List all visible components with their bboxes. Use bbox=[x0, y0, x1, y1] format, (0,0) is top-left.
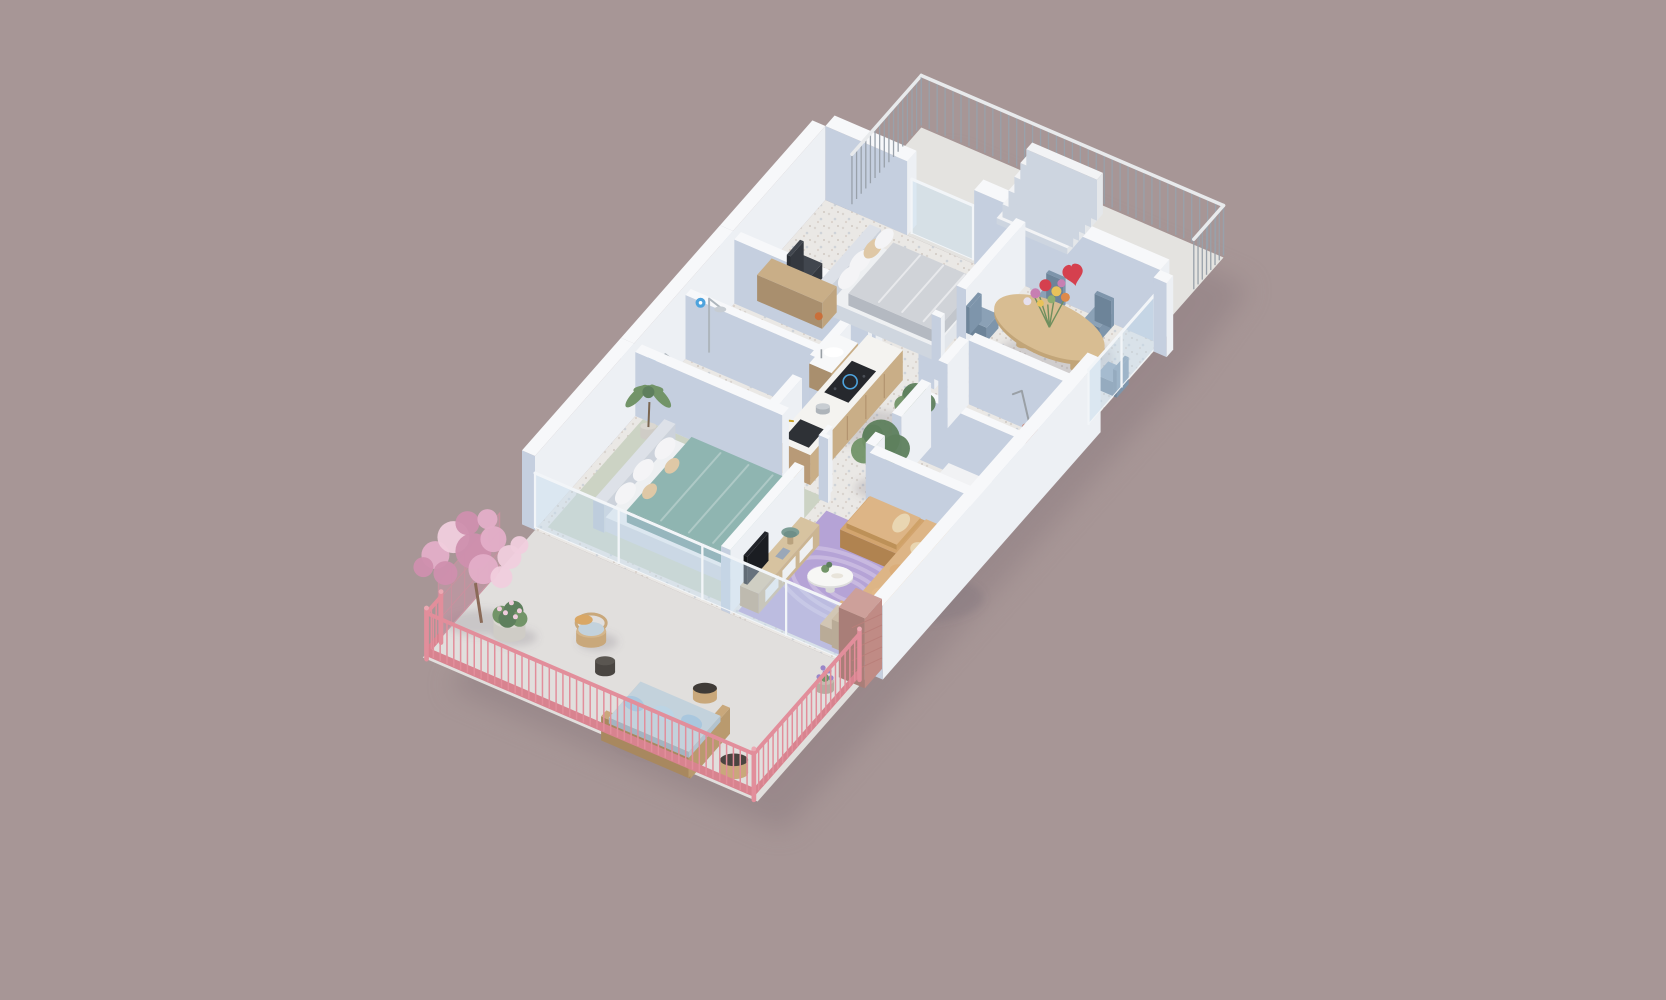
screenshot-canvas bbox=[0, 0, 1666, 1000]
floor-plan-3d-render bbox=[0, 0, 1666, 1000]
balcony-side-table bbox=[595, 656, 615, 676]
balcony-rattan-table bbox=[693, 683, 717, 704]
exterior-wall-se-2 bbox=[1154, 270, 1174, 357]
